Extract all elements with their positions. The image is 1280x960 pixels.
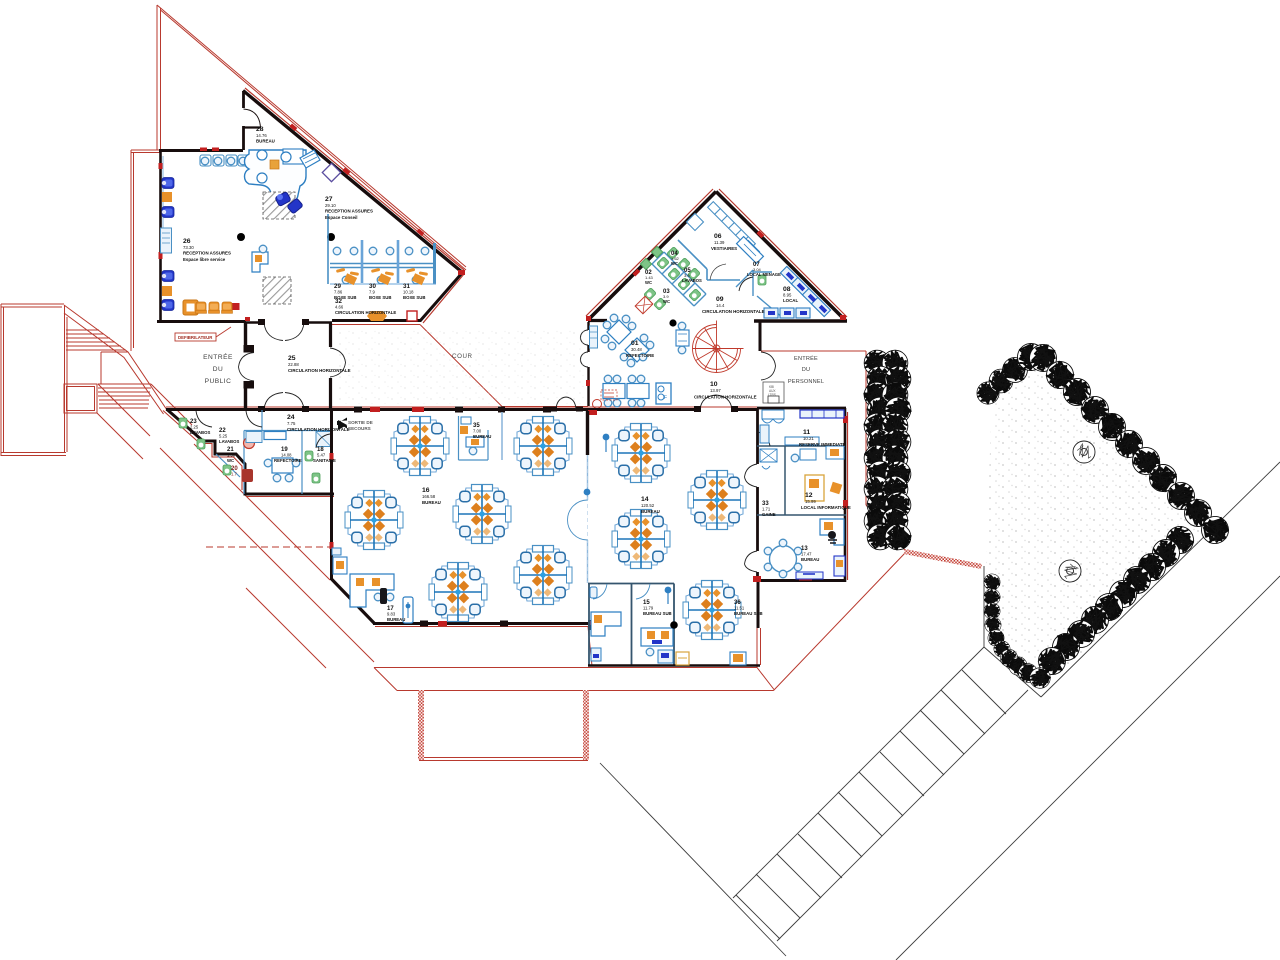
svg-text:29.10: 29.10 — [325, 203, 336, 208]
svg-text:120.52: 120.52 — [641, 503, 655, 508]
svg-text:CIRCULATION HORIZONTALE: CIRCULATION HORIZONTALE — [702, 309, 765, 314]
svg-text:14: 14 — [641, 496, 649, 503]
svg-text:BUREAU SUB: BUREAU SUB — [643, 611, 672, 616]
svg-text:BOXE SUB: BOXE SUB — [403, 295, 425, 300]
svg-text:RESERVE IMMEDIATE: RESERVE IMMEDIATE — [799, 442, 846, 447]
svg-text:24: 24 — [287, 414, 295, 421]
svg-text:17.47: 17.47 — [801, 552, 812, 557]
svg-text:BOXE SUB: BOXE SUB — [369, 295, 391, 300]
svg-text:BUREAU SUB: BUREAU SUB — [734, 611, 763, 616]
svg-text:LOCAL: LOCAL — [783, 298, 798, 303]
svg-text:11.51: 11.51 — [734, 606, 745, 611]
svg-text:PERSONNEL: PERSONNEL — [788, 379, 824, 385]
svg-text:VESTIAIRES: VESTIAIRES — [711, 246, 737, 251]
svg-text:SORTIE DE: SORTIE DE — [348, 420, 373, 425]
svg-text:1.53: 1.53 — [227, 453, 236, 458]
svg-text:22.88: 22.88 — [288, 362, 299, 367]
svg-text:WC: WC — [645, 280, 652, 285]
svg-text:LAVABOS: LAVABOS — [190, 430, 211, 435]
svg-text:WC: WC — [671, 261, 678, 266]
svg-text:RECEPTION ASSURES: RECEPTION ASSURES — [183, 251, 231, 256]
svg-text:8.95: 8.95 — [783, 293, 792, 298]
svg-text:LTRS: LTRS — [768, 393, 776, 397]
svg-text:BUREAU: BUREAU — [641, 509, 660, 514]
svg-text:REFECTOIRE: REFECTOIRE — [274, 458, 302, 463]
svg-text:2.25: 2.25 — [190, 425, 199, 430]
svg-text:REFECTOIRE: REFECTOIRE — [626, 353, 654, 358]
svg-text:BUREAU: BUREAU — [473, 434, 491, 439]
svg-text:7.75: 7.75 — [287, 421, 296, 426]
svg-text:F: F — [664, 395, 667, 401]
svg-text:SANITAIRE: SANITAIRE — [313, 458, 336, 463]
svg-text:LAVABOS: LAVABOS — [682, 278, 702, 283]
svg-text:4.66: 4.66 — [335, 305, 344, 310]
svg-text:166.58: 166.58 — [422, 494, 436, 499]
svg-text:9.83: 9.83 — [387, 612, 396, 617]
svg-text:WC: WC — [663, 299, 670, 304]
svg-text:5.25: 5.25 — [219, 434, 228, 439]
svg-text:01: 01 — [631, 340, 639, 347]
svg-text:30.48: 30.48 — [631, 347, 642, 352]
svg-text:ENTRÉE: ENTRÉE — [203, 352, 233, 361]
svg-text:Espace Conseil: Espace Conseil — [325, 215, 357, 220]
svg-text:11.79: 11.79 — [643, 606, 654, 611]
svg-text:WC: WC — [227, 458, 234, 463]
svg-text:27: 27 — [325, 196, 333, 203]
svg-text:09: 09 — [716, 296, 724, 303]
svg-text:7.9: 7.9 — [369, 290, 375, 295]
svg-text:SECOURS: SECOURS — [348, 426, 371, 431]
svg-text:26: 26 — [183, 238, 191, 245]
svg-text:1.7: 1.7 — [231, 472, 237, 477]
svg-text:7.00: 7.00 — [473, 429, 482, 434]
svg-text:BUREAU: BUREAU — [387, 617, 405, 622]
svg-text:15.99: 15.99 — [805, 499, 816, 504]
svg-text:28: 28 — [256, 126, 264, 133]
svg-text:Espace libre service: Espace libre service — [183, 257, 226, 262]
svg-text:GAINE: GAINE — [762, 512, 776, 517]
svg-text:10.21: 10.21 — [803, 436, 814, 441]
svg-text:16: 16 — [422, 487, 430, 494]
svg-text:10: 10 — [710, 381, 718, 388]
svg-text:ENTRÉE: ENTRÉE — [794, 355, 818, 362]
svg-text:CIRCULATION HORIZONTALE: CIRCULATION HORIZONTALE — [287, 427, 350, 432]
svg-text:PUBLIC: PUBLIC — [205, 378, 232, 385]
svg-text:12: 12 — [805, 492, 813, 499]
svg-text:73.30: 73.30 — [183, 245, 194, 250]
svg-text:LAVABOS: LAVABOS — [219, 439, 240, 444]
svg-text:13.97: 13.97 — [710, 388, 721, 393]
svg-text:14.08: 14.08 — [281, 453, 292, 458]
svg-text:25: 25 — [288, 355, 296, 362]
svg-text:1.71: 1.71 — [762, 507, 771, 512]
svg-text:14.4: 14.4 — [716, 303, 725, 308]
svg-text:CIRCULATION HORIZONTALE: CIRCULATION HORIZONTALE — [288, 368, 351, 373]
svg-text:CIRCULATION HORIZONTALE: CIRCULATION HORIZONTALE — [335, 310, 396, 315]
svg-text:11.39: 11.39 — [714, 240, 725, 245]
svg-text:CIRCULATION HORIZONTALE: CIRCULATION HORIZONTALE — [694, 395, 757, 400]
svg-text:06: 06 — [714, 233, 722, 240]
svg-text:11: 11 — [803, 429, 810, 436]
svg-text:COUR: COUR — [452, 353, 473, 360]
svg-text:BUREAU: BUREAU — [801, 557, 819, 562]
svg-text:BUREAU: BUREAU — [256, 139, 275, 144]
svg-text:DU: DU — [213, 366, 224, 373]
svg-text:LOCAL MENAGE: LOCAL MENAGE — [747, 272, 781, 277]
svg-text:5.47: 5.47 — [317, 453, 326, 458]
svg-text:BUREAU: BUREAU — [422, 500, 441, 505]
svg-text:DU: DU — [802, 367, 810, 373]
svg-text:10.18: 10.18 — [403, 290, 414, 295]
svg-text:LOCAL INFORMATIQUE: LOCAL INFORMATIQUE — [801, 505, 851, 510]
svg-text:14.76: 14.76 — [256, 133, 267, 138]
svg-text:RECEPTION ASSURES: RECEPTION ASSURES — [325, 209, 373, 214]
svg-text:7.86: 7.86 — [334, 290, 343, 295]
svg-text:DEFIBRILATEUR: DEFIBRILATEUR — [178, 335, 213, 340]
